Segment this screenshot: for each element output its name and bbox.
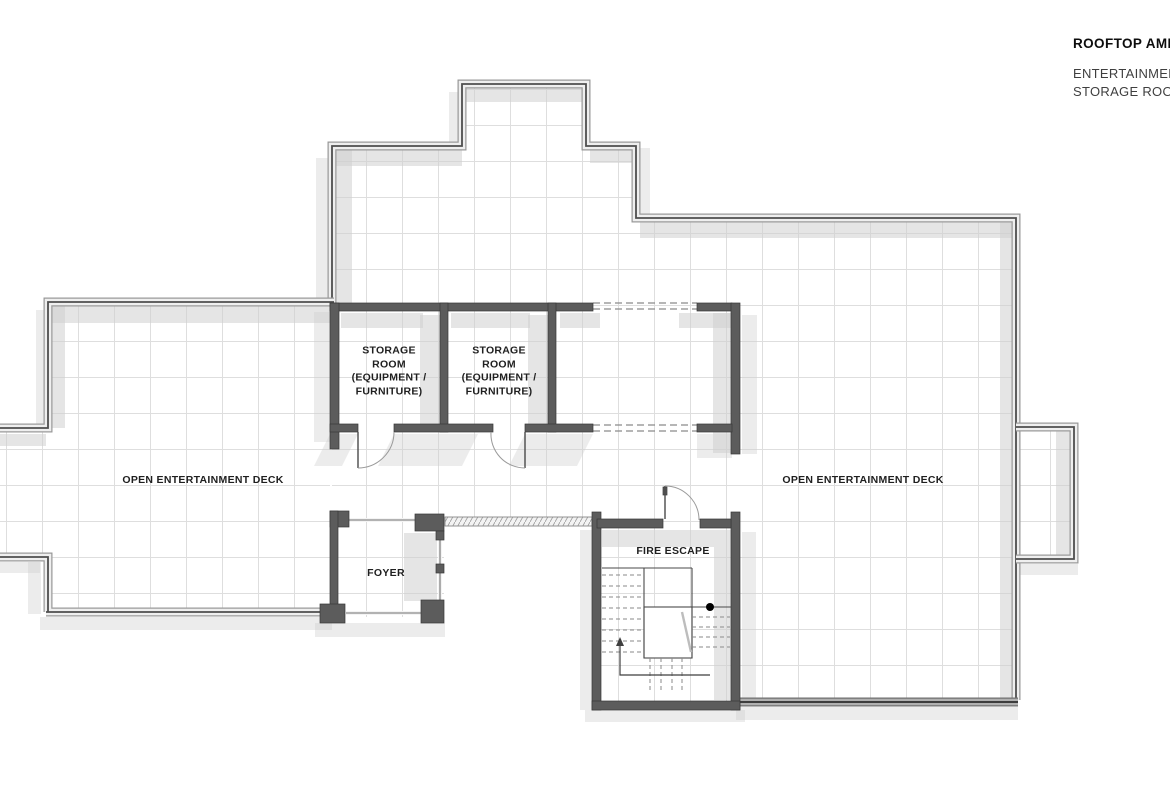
sheet-title: ROOFTOP AMEN <box>1073 36 1170 51</box>
foyer-label: FOYER <box>367 567 405 579</box>
stair-reference-dot <box>706 603 714 611</box>
corridor-railing <box>445 517 592 526</box>
storage-room-1-label: STORAGE ROOM (EQUIPMENT / FURNITURE) <box>341 345 437 400</box>
sheet-subtitle-line2: STORAGE ROOM <box>1073 83 1170 101</box>
storage-room-2-label: STORAGE ROOM (EQUIPMENT / FURNITURE) <box>451 345 547 400</box>
rooftop-floor-plan-page: STORAGE ROOM (EQUIPMENT / FURNITURE) STO… <box>0 0 1170 785</box>
open-deck-right-label: OPEN ENTERTAINMENT DECK <box>782 474 943 486</box>
sheet-subtitle-line1: ENTERTAINMENT <box>1073 65 1170 83</box>
title-block: ROOFTOP AMEN ENTERTAINMENT STORAGE ROOM <box>1073 36 1170 101</box>
fire-escape-label: FIRE ESCAPE <box>636 545 709 557</box>
floor-plan-drawing <box>0 0 1170 785</box>
open-deck-left-label: OPEN ENTERTAINMENT DECK <box>122 474 283 486</box>
